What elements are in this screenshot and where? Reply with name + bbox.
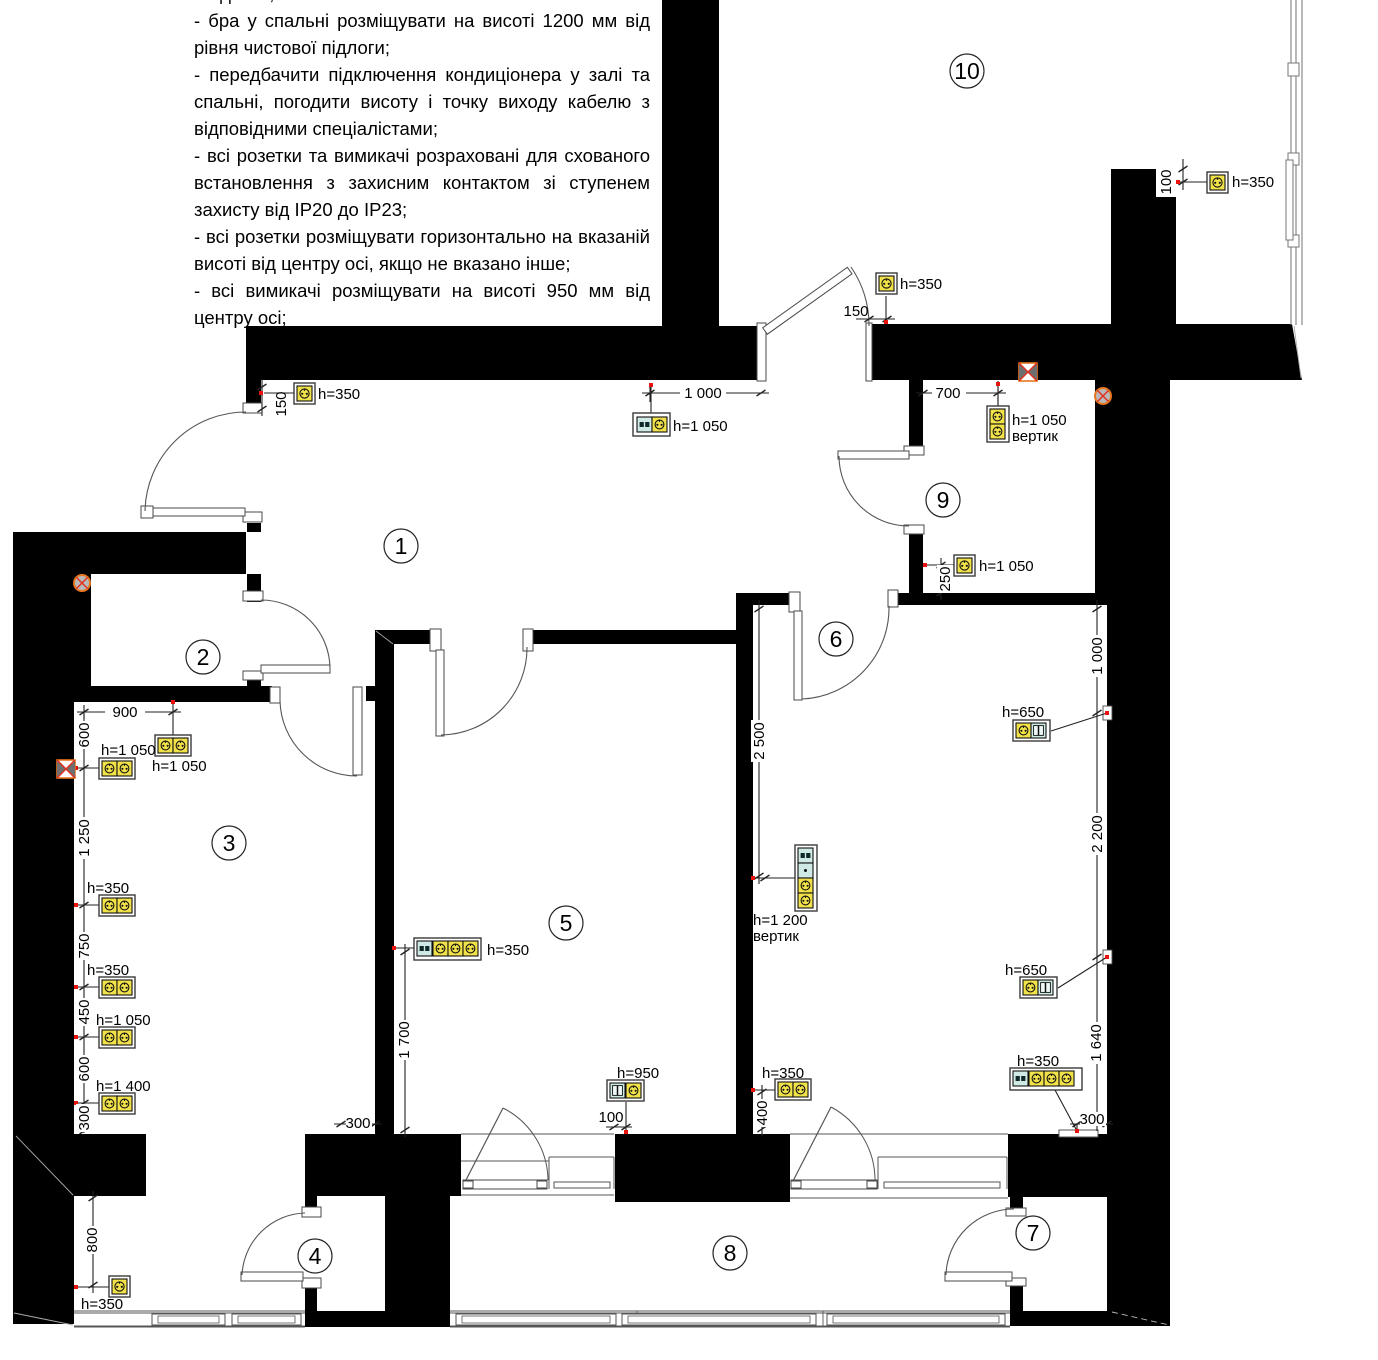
svg-text:600: 600 [76, 722, 93, 747]
svg-text:h=1 050: h=1 050 [979, 558, 1034, 575]
svg-text:h=350: h=350 [1232, 174, 1274, 191]
svg-text:h=1 050: h=1 050 [152, 758, 207, 775]
svg-text:h=1 200: h=1 200 [753, 912, 808, 929]
svg-text:1 000: 1 000 [684, 385, 722, 402]
svg-text:4: 4 [309, 1243, 322, 1269]
svg-text:h=350: h=350 [87, 962, 129, 979]
svg-text:300: 300 [345, 1115, 370, 1132]
svg-text:900: 900 [112, 704, 137, 721]
svg-text:h=1 050: h=1 050 [101, 742, 156, 759]
svg-text:750: 750 [76, 933, 93, 958]
svg-text:600: 600 [76, 1056, 93, 1081]
svg-text:1 000: 1 000 [1089, 637, 1106, 675]
svg-text:8: 8 [724, 1240, 737, 1266]
svg-text:h=350: h=350 [487, 942, 529, 959]
svg-text:700: 700 [935, 385, 960, 402]
svg-text:h=1 400: h=1 400 [96, 1078, 151, 1095]
svg-text:1 250: 1 250 [76, 819, 93, 857]
svg-text:100: 100 [598, 1109, 623, 1126]
svg-text:2 500: 2 500 [751, 722, 768, 760]
svg-text:h=650: h=650 [1005, 962, 1047, 979]
svg-text:300: 300 [1079, 1111, 1104, 1128]
svg-text:1: 1 [395, 533, 408, 559]
svg-text:h=950: h=950 [617, 1065, 659, 1082]
svg-text:h=1 050: h=1 050 [673, 418, 728, 435]
svg-text:h=350: h=350 [318, 386, 360, 403]
svg-text:h=350: h=350 [900, 276, 942, 293]
svg-text:h=350: h=350 [762, 1065, 804, 1082]
svg-text:1 640: 1 640 [1088, 1024, 1105, 1062]
svg-text:7: 7 [1027, 1220, 1040, 1246]
svg-text:2: 2 [197, 644, 210, 670]
svg-text:6: 6 [830, 626, 843, 652]
svg-text:3: 3 [223, 830, 236, 856]
svg-text:h=1 050: h=1 050 [96, 1012, 151, 1029]
svg-text:800: 800 [84, 1227, 101, 1252]
svg-text:10: 10 [954, 58, 980, 84]
svg-text:вертик: вертик [753, 928, 799, 945]
svg-text:300: 300 [76, 1105, 93, 1130]
svg-text:150: 150 [843, 303, 868, 320]
svg-text:h=350: h=350 [1017, 1053, 1059, 1070]
svg-text:450: 450 [76, 999, 93, 1024]
svg-text:400: 400 [754, 1100, 771, 1125]
svg-text:h=650: h=650 [1002, 704, 1044, 721]
svg-text:5: 5 [560, 910, 573, 936]
svg-text:h=350: h=350 [87, 880, 129, 897]
svg-text:1 700: 1 700 [396, 1021, 413, 1059]
svg-text:вертик: вертик [1012, 428, 1058, 445]
svg-text:h=350: h=350 [81, 1296, 123, 1313]
svg-text:150: 150 [273, 391, 290, 416]
svg-text:250: 250 [937, 566, 954, 591]
svg-text:100: 100 [1158, 169, 1175, 194]
svg-text:9: 9 [937, 487, 950, 513]
svg-text:2 200: 2 200 [1089, 815, 1106, 853]
svg-text:h=1 050: h=1 050 [1012, 412, 1067, 429]
